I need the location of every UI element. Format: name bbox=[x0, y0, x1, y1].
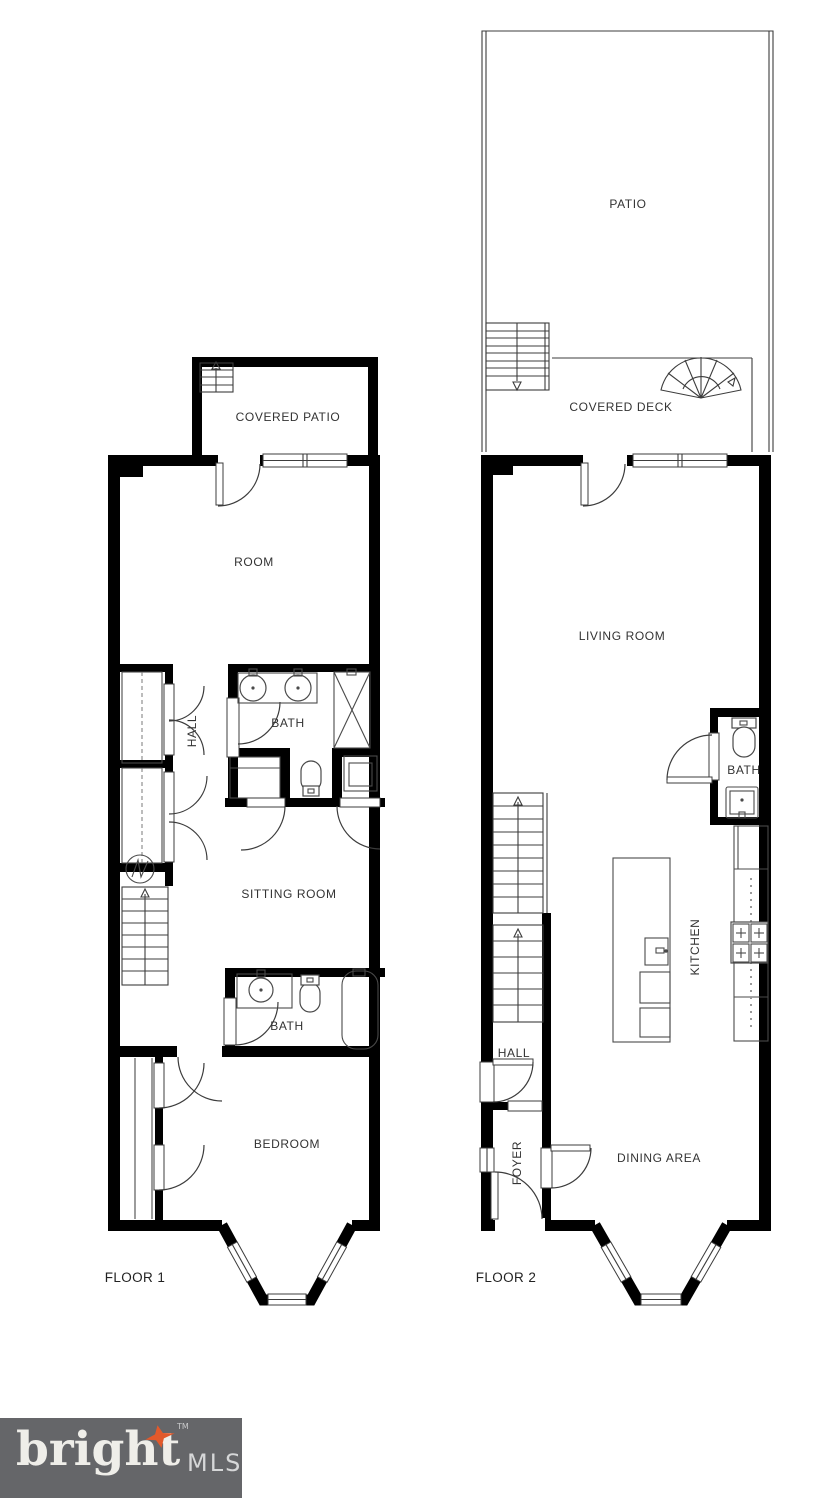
floor1-plan: COVERED PATIO ROOM HALL BATH SITTING ROO… bbox=[105, 357, 385, 1305]
label-bath-upper: BATH bbox=[271, 716, 305, 730]
toilet-icon bbox=[732, 718, 756, 757]
floor2-patio-outline bbox=[482, 31, 773, 452]
stove-icon bbox=[731, 922, 768, 963]
logo-suffix-text: MLS bbox=[187, 1449, 242, 1477]
label-sitting-room: SITTING ROOM bbox=[241, 887, 336, 901]
label-living-room: LIVING ROOM bbox=[579, 629, 666, 643]
toilet-icon bbox=[301, 761, 321, 796]
floor2-openings bbox=[480, 453, 719, 1232]
floor2-window-top bbox=[633, 454, 727, 467]
brightmls-logo: bright TM MLS bbox=[0, 1418, 242, 1498]
floor2-outer-walls bbox=[481, 455, 771, 1300]
label-kitchen: KITCHEN bbox=[688, 919, 702, 976]
floor2-plan: PATIO COVERED DECK LIVING ROOM BATH KITC… bbox=[476, 31, 773, 1305]
floor2-window-left bbox=[480, 1148, 494, 1172]
label-covered-patio: COVERED PATIO bbox=[236, 410, 341, 424]
label-dining-area: DINING AREA bbox=[617, 1151, 701, 1165]
floor1-title: FLOOR 1 bbox=[105, 1270, 166, 1285]
floor1-bath-lower-fixtures bbox=[237, 969, 378, 1049]
fan-stairs bbox=[661, 357, 741, 398]
floor1-interior-walls bbox=[118, 664, 385, 1220]
floor2-bay-windows bbox=[601, 1242, 721, 1305]
logo-trademark: TM bbox=[177, 1422, 189, 1431]
floor1-bedroom-closet bbox=[135, 1058, 152, 1219]
floor-plan-canvas: COVERED PATIO ROOM HALL BATH SITTING ROO… bbox=[0, 0, 832, 1412]
label-hall-f2: HALL bbox=[498, 1046, 530, 1060]
label-hall-f1: HALL bbox=[185, 715, 199, 747]
kitchen-island bbox=[613, 858, 670, 1042]
label-bedroom: BEDROOM bbox=[254, 1137, 320, 1151]
label-covered-deck: COVERED DECK bbox=[569, 400, 672, 414]
deck-stairs bbox=[486, 323, 549, 390]
floor1-outer-walls bbox=[108, 455, 380, 1300]
floor1-stairs bbox=[122, 855, 168, 985]
label-room: ROOM bbox=[234, 555, 274, 569]
label-bath-f2: BATH bbox=[727, 763, 761, 777]
label-foyer: FOYER bbox=[510, 1141, 524, 1185]
floor1-covered-patio-walls bbox=[192, 357, 378, 455]
floor1-hall-closet bbox=[122, 672, 162, 863]
floor2-title: FLOOR 2 bbox=[476, 1270, 537, 1285]
floor1-bath-upper-fixtures bbox=[230, 669, 377, 798]
star-icon bbox=[144, 1423, 176, 1450]
floor1-doors bbox=[159, 463, 380, 1190]
floor1-window-top bbox=[263, 454, 347, 467]
sink-icon bbox=[726, 787, 758, 818]
floor1-bay-windows bbox=[227, 1242, 346, 1305]
label-patio: PATIO bbox=[609, 197, 646, 211]
floor2-stairs bbox=[493, 793, 547, 1022]
toilet-icon bbox=[300, 975, 320, 1012]
label-bath-lower: BATH bbox=[270, 1019, 304, 1033]
shower-icon bbox=[334, 669, 370, 748]
